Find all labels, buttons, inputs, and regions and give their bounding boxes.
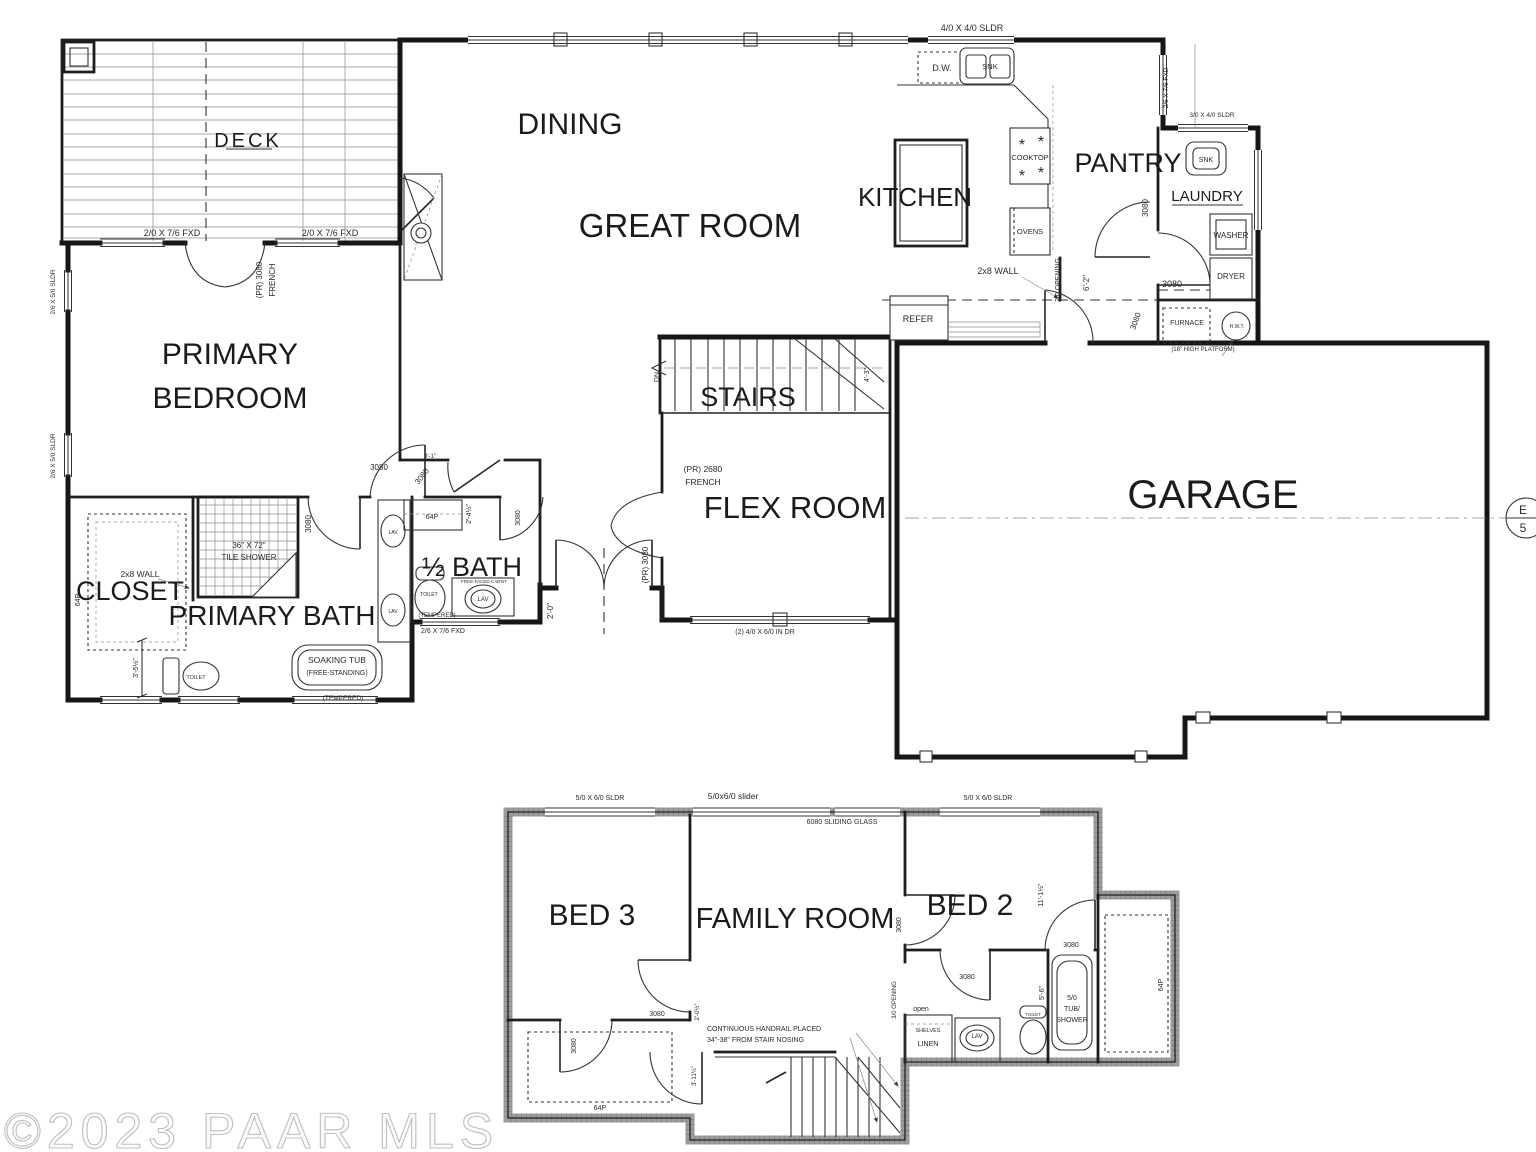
garage-door-arc (1045, 290, 1093, 343)
bed3-closet-door-arc (560, 1020, 612, 1072)
annotation-text: DRYER (1217, 272, 1245, 281)
annotation-text: 2/6 X 5/0 SLDR (50, 269, 57, 314)
annotation-text: FURNACE (1170, 320, 1204, 327)
annotation-text: 3080 (413, 466, 431, 486)
room-label-primary-1: PRIMARY (162, 338, 298, 371)
room-label-garage: GARAGE (1127, 473, 1298, 517)
annotation-text: 3080 (370, 463, 388, 472)
hall-door-arc (448, 462, 454, 492)
annotation-text: TOILET (1025, 1012, 1041, 1017)
annotation-text: LAV (388, 530, 398, 536)
lower-floor: BED 3 FAMILY ROOM BED 2 5/0 X 6/0 SLDR5/… (508, 791, 1175, 1140)
annotation-text: 11'-1½" (1037, 883, 1045, 907)
annotation-text: 3'-5½" (132, 658, 140, 678)
annotation-text: (PR) 2680 (684, 464, 723, 474)
main-floor: DECK DINING GREAT ROOM KITCHEN PANTRY LA… (50, 23, 1536, 762)
room-label-flex: FLEX ROOM (704, 490, 887, 525)
annotation-text: H.W.T. (1230, 324, 1245, 330)
room-label-kitchen: KITCHEN (858, 182, 972, 212)
annotation-text: (PR) 3080 (641, 546, 650, 583)
annotation-text: 5'-6" (1039, 986, 1046, 1000)
annotation-text: 64P (594, 1105, 607, 1112)
annotation-text: 2/0 X 7/6 FXD (144, 228, 201, 238)
annotation-text: 3/0 X 4/0 SLDR (1189, 112, 1234, 119)
annotation-text: 3080 (896, 917, 903, 933)
annotation-text: 2/6 X 5/0 SLDR (50, 433, 57, 478)
annotation-text: (TEMPERED) (418, 613, 455, 619)
annotation-text: 5 (1520, 521, 1527, 535)
annotation-text: SHELVES (916, 1028, 941, 1034)
annotation-text: D.W. (932, 63, 952, 73)
bed3-door-arc (638, 960, 690, 1012)
stairs-treads (791, 1057, 880, 1137)
annotation-text: * (1019, 168, 1025, 185)
room-label-dining: DINING (518, 108, 623, 141)
annotation-text: * (1038, 165, 1044, 182)
watermark-text: ©2023 PAAR MLS (4, 1103, 499, 1152)
garage-pilaster (920, 751, 932, 762)
annotation-text: (TEMPERED) (323, 695, 363, 702)
soaking-tub (292, 645, 382, 690)
annotation-text: 5/0 (1067, 995, 1077, 1002)
annotation-text: OVENS (1017, 227, 1043, 236)
annotation-text: 5/0x6/0 slider (708, 791, 759, 801)
annotation-text: SNK (982, 62, 997, 71)
room-label-primary-bath: PRIMARY BATH (169, 600, 376, 631)
annotation-text: (FREE-STANDING) (306, 670, 367, 677)
annotation-text: (2) 4/0 X 6/0 IN DR (735, 629, 795, 636)
annotation-text: 2x8 WALL (121, 569, 160, 579)
annotation-text: 3080 (304, 515, 313, 533)
annotation-text: 3'-1" (424, 454, 436, 460)
annotation-text: 2/0 OPENING (1055, 258, 1062, 302)
annotation-text: (PR) 3080 (255, 261, 264, 298)
deck-post (64, 42, 94, 72)
garage-pilaster (1327, 712, 1341, 723)
annotation-text: 3/0 OPENING (892, 981, 898, 1019)
annotation-text: SOAKING TUB (308, 655, 366, 665)
wall-note-leader (1022, 277, 1058, 298)
room-label-bed2: BED 2 (927, 889, 1014, 922)
annotation-text: 3080 (1141, 199, 1150, 217)
stairs-break-tick (766, 1072, 786, 1083)
room-label-great-room: GREAT ROOM (579, 207, 801, 244)
annotation-text: 3'-11½" (691, 1066, 698, 1086)
room-label-laundry: LAUNDRY (1171, 188, 1242, 205)
annotation-text: FRENCH (685, 477, 720, 487)
room-label-primary-2: BEDROOM (152, 382, 307, 415)
annotation-text: (18" HIGH PLATFORM) (1171, 347, 1234, 353)
annotation-text: LINEN (918, 1041, 939, 1048)
room-label-deck: DECK (214, 130, 282, 152)
annotation-text: 6'-2" (1082, 275, 1091, 291)
annotation-text: FRENCH (268, 263, 277, 297)
annotation-text: 3080 (1063, 942, 1079, 949)
bed3-closet-shelves (528, 1032, 672, 1102)
annotation-text: WASHER (1214, 231, 1249, 240)
annotation-text: 3080 (959, 974, 975, 981)
deck-side-door-arc (400, 178, 434, 198)
room-label-half-bath: ½ BATH (422, 552, 522, 582)
flex-french-door (611, 492, 662, 558)
annotation-text: TILE SHOWER (221, 553, 276, 562)
bench-counter (948, 322, 1040, 337)
bath-door-arc (308, 497, 360, 549)
annotation-text: TOILET (186, 675, 206, 681)
annotation-text: open (913, 1006, 929, 1013)
annotation-text: CONTINUOUS HANDRAIL PLACED (707, 1026, 821, 1033)
room-labels-lower: BED 3 FAMILY ROOM BED 2 (549, 889, 1014, 935)
annotation-text: 2/6 X 7/6 FXD (1163, 67, 1170, 108)
annotation-text: 6080 SLIDING GLASS (807, 819, 878, 826)
floor-plan-svg: DECK DINING GREAT ROOM KITCHEN PANTRY LA… (0, 0, 1536, 1152)
annotation-text: TOILET (420, 592, 437, 598)
handrail-leader (856, 1033, 898, 1086)
room-label-bed3: BED 3 (549, 899, 636, 932)
annotation-text: SNK (1199, 157, 1214, 164)
annotation-text: 2'-0½" (694, 1004, 701, 1021)
lower-interior-walls (508, 812, 1098, 1062)
annotation-text: TUB/ (1064, 1006, 1080, 1013)
annotation-text: FREE-FACED CAB'NT (461, 579, 507, 584)
fireplace (404, 174, 442, 280)
annotation-text: E (1519, 503, 1527, 517)
annotation-text: 5/0 X 6/0 SLDR (964, 795, 1013, 802)
garage-pilaster (1196, 712, 1210, 723)
annotation-text: 64P (75, 593, 82, 606)
annotation-text: 3080 (1162, 279, 1182, 289)
linen-cabinet (905, 1015, 952, 1062)
annotation-text: SHOWER (1056, 1017, 1088, 1024)
annotation-text: DN (654, 372, 661, 382)
annotation-text: * (1019, 137, 1025, 154)
annotation-text: 36" X 72" (232, 541, 265, 550)
laundry-door-arc (1158, 233, 1210, 285)
annotation-text: 3080 (1128, 311, 1143, 331)
deck-french-door (185, 243, 265, 287)
annotation-text: REFER (903, 314, 934, 324)
room-label-stairs: STAIRS (700, 382, 796, 412)
room-label-pantry: PANTRY (1074, 148, 1181, 178)
annotation-text: COOKTOP (1011, 153, 1048, 162)
stairs-winder-lines (835, 1057, 900, 1133)
annotation-text: LAV (972, 1034, 983, 1040)
annotation-text: LAV (388, 609, 398, 615)
annotation-text: 5/0 X 6/0 SLDR (576, 795, 625, 802)
annotation-text: 3080 (515, 510, 522, 526)
annotation-text: 4'-3" (864, 368, 871, 382)
stairs-lower (715, 1033, 900, 1137)
annotation-text: 64P (1158, 978, 1165, 991)
annotation-text: 2/0 X 7/6 FXD (302, 228, 359, 238)
annotation-text: 2/6 X 7/6 FXD (421, 628, 465, 635)
annotation-text: 34"-38" FROM STAIR NOSING (707, 1037, 804, 1044)
annotation-text: 64P (426, 514, 439, 521)
annotation-text: 2'-4½" (465, 504, 473, 524)
room-label-family-room: FAMILY ROOM (696, 903, 895, 935)
annotation-text: 2x8 WALL (977, 266, 1018, 276)
annotation-text: 2'-0" (546, 603, 555, 619)
annotation-text: LAV (478, 597, 489, 603)
annotation-text: * (1038, 134, 1044, 151)
annotation-text: 3080 (571, 1038, 578, 1054)
deck-post-inner (70, 48, 88, 66)
annotation-text: 3080 (649, 1011, 665, 1018)
garage-pilaster (1135, 751, 1147, 762)
windows-lower (545, 804, 1040, 820)
annotation-text: 4/0 X 4/0 SLDR (941, 23, 1004, 33)
hall-door-leaf (454, 460, 500, 492)
